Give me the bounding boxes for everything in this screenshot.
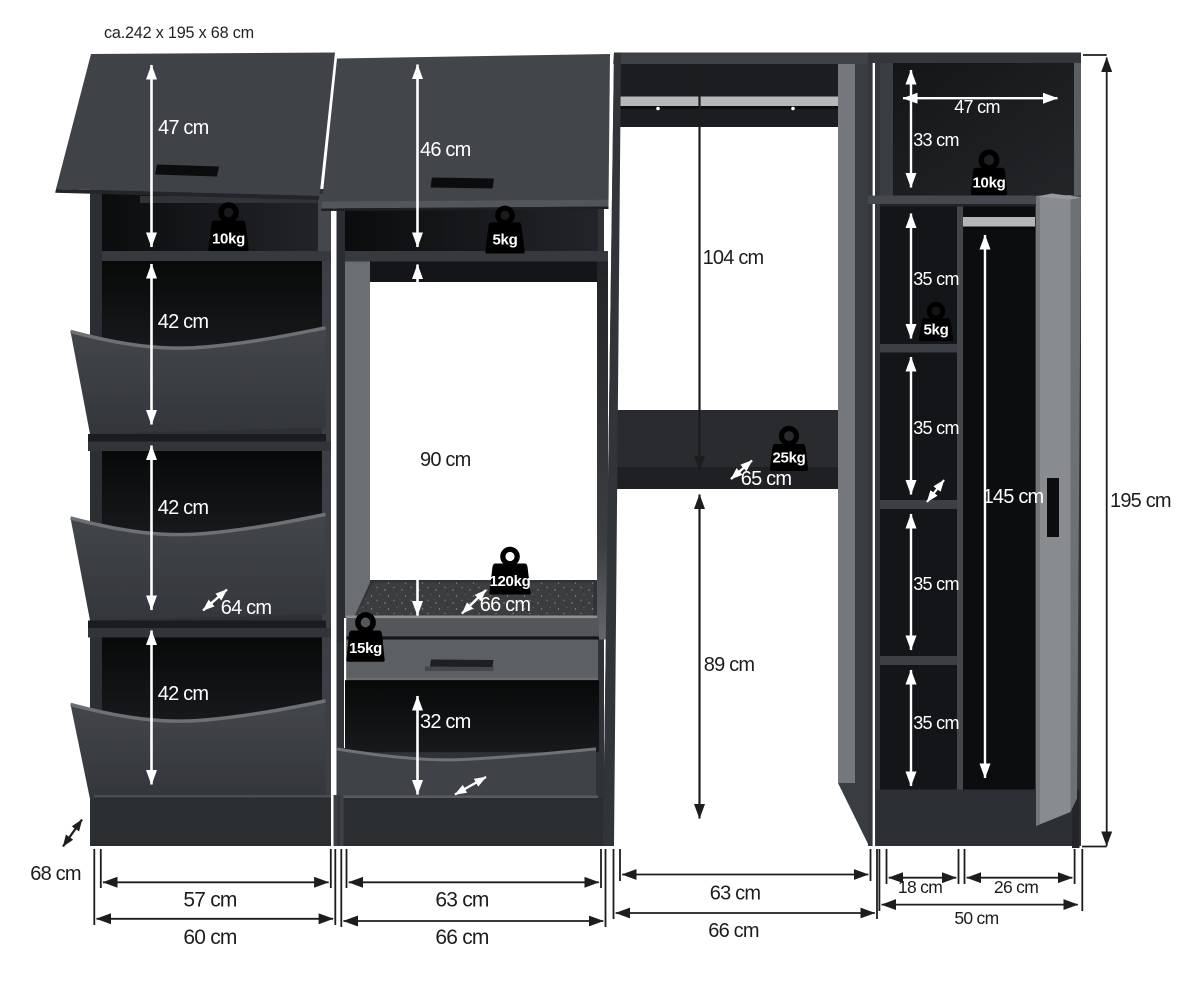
svg-text:35 cm: 35 cm bbox=[913, 713, 959, 733]
svg-text:66 cm: 66 cm bbox=[708, 920, 759, 942]
svg-text:63 cm: 63 cm bbox=[710, 883, 761, 905]
svg-text:47 cm: 47 cm bbox=[158, 117, 209, 139]
svg-text:42 cm: 42 cm bbox=[158, 683, 209, 705]
svg-text:32 cm: 32 cm bbox=[420, 711, 471, 733]
svg-text:25kg: 25kg bbox=[773, 450, 806, 467]
svg-text:26 cm: 26 cm bbox=[994, 877, 1038, 897]
svg-text:68 cm: 68 cm bbox=[30, 863, 81, 885]
svg-text:35 cm: 35 cm bbox=[913, 574, 959, 594]
svg-text:5kg: 5kg bbox=[493, 232, 518, 249]
svg-text:10kg: 10kg bbox=[973, 175, 1006, 192]
svg-text:64 cm: 64 cm bbox=[221, 597, 272, 619]
svg-text:120kg: 120kg bbox=[489, 573, 530, 590]
svg-text:35 cm: 35 cm bbox=[913, 418, 959, 438]
svg-text:35 cm: 35 cm bbox=[913, 269, 959, 289]
svg-text:15kg: 15kg bbox=[349, 640, 382, 657]
svg-text:66 cm: 66 cm bbox=[480, 594, 531, 616]
svg-text:50 cm: 50 cm bbox=[954, 908, 998, 928]
svg-text:5kg: 5kg bbox=[924, 322, 949, 339]
svg-text:66 cm: 66 cm bbox=[435, 926, 488, 949]
svg-text:145 cm: 145 cm bbox=[983, 486, 1044, 508]
svg-text:10kg: 10kg bbox=[212, 231, 245, 248]
svg-text:65 cm: 65 cm bbox=[741, 468, 792, 490]
svg-text:46 cm: 46 cm bbox=[420, 139, 471, 161]
svg-text:104 cm: 104 cm bbox=[703, 247, 764, 269]
svg-text:18 cm: 18 cm bbox=[898, 877, 942, 897]
svg-text:60 cm: 60 cm bbox=[183, 926, 236, 949]
svg-text:89 cm: 89 cm bbox=[704, 654, 755, 676]
svg-text:42 cm: 42 cm bbox=[158, 311, 209, 333]
svg-text:42 cm: 42 cm bbox=[158, 497, 209, 519]
svg-text:ca.242 x 195 x 68 cm: ca.242 x 195 x 68 cm bbox=[104, 24, 254, 42]
svg-text:47 cm: 47 cm bbox=[954, 97, 1000, 117]
svg-text:33 cm: 33 cm bbox=[913, 130, 959, 150]
svg-text:63 cm: 63 cm bbox=[435, 889, 488, 912]
svg-text:195 cm: 195 cm bbox=[1110, 490, 1171, 512]
svg-text:90 cm: 90 cm bbox=[420, 449, 471, 471]
svg-text:57 cm: 57 cm bbox=[183, 889, 236, 912]
